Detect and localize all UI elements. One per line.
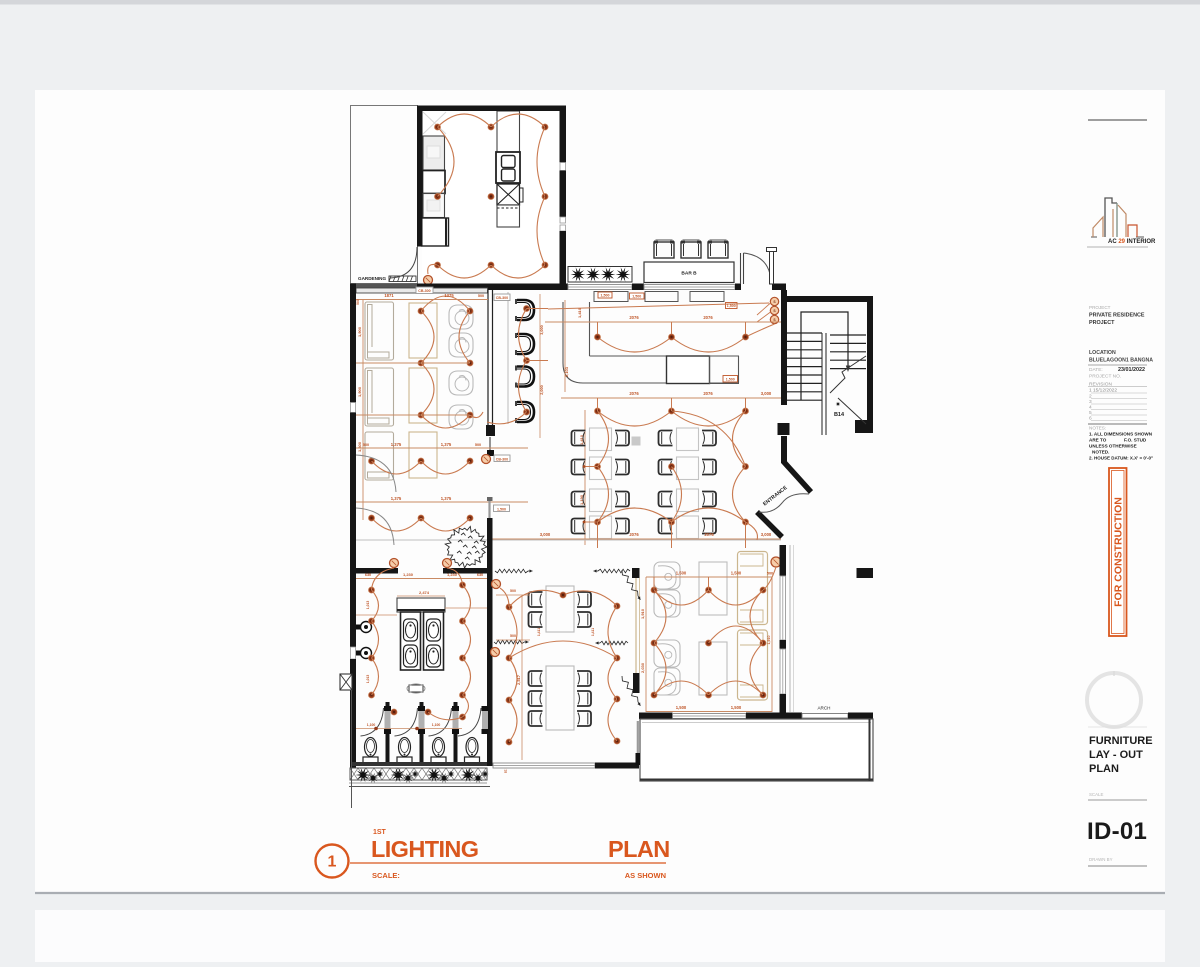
svg-text:23/01/2022: 23/01/2022 [1118, 367, 1145, 373]
svg-text:500: 500 [767, 572, 773, 576]
svg-text:UNLESS OTHERWISE: UNLESS OTHERWISE [1089, 444, 1137, 449]
svg-text:1,410: 1,410 [577, 307, 582, 318]
svg-text:DATE:: DATE: [1089, 367, 1103, 373]
svg-text:1,500: 1,500 [676, 571, 687, 576]
svg-text:SCALE: SCALE [1089, 792, 1103, 797]
svg-text:500: 500 [510, 634, 516, 638]
svg-text:LIGHTING: LIGHTING [371, 836, 478, 862]
svg-text:1,910: 1,910 [640, 608, 645, 619]
svg-text:500: 500 [475, 443, 481, 447]
svg-text:3,000: 3,000 [540, 325, 544, 335]
svg-text:NOTED.: NOTED. [1092, 450, 1109, 455]
svg-text:500: 500 [510, 589, 516, 593]
svg-text:1,500: 1,500 [726, 378, 735, 382]
svg-text:3,000: 3,000 [761, 391, 772, 396]
svg-text:2076: 2076 [703, 315, 713, 320]
svg-text:CB-300: CB-300 [496, 457, 508, 461]
svg-text:FOR CONSTRUCTION: FOR CONSTRUCTION [1113, 497, 1125, 607]
svg-text:500: 500 [363, 443, 369, 447]
svg-text:1,900: 1,900 [357, 326, 362, 337]
svg-text:BAR B: BAR B [681, 271, 697, 277]
svg-text:2076: 2076 [629, 315, 639, 320]
svg-text:PROJECT: PROJECT [1089, 305, 1111, 310]
svg-text:1,411: 1,411 [537, 628, 541, 636]
svg-text:1,375: 1,375 [441, 496, 452, 501]
svg-text:PLAN: PLAN [1089, 763, 1119, 775]
svg-text:1,013: 1,013 [366, 601, 370, 610]
svg-text:1 15/12/2022: 1 15/12/2022 [1089, 388, 1117, 394]
svg-text:500: 500 [356, 299, 360, 305]
svg-text:1,230: 1,230 [403, 572, 414, 577]
svg-text:2076: 2076 [629, 391, 639, 396]
svg-text:630: 630 [365, 573, 371, 577]
svg-text:2076: 2076 [703, 391, 713, 396]
svg-text:1,100: 1,100 [432, 723, 441, 727]
svg-text:PRIVATE RESIDENCE: PRIVATE RESIDENCE [1089, 313, 1145, 319]
svg-text:1,230: 1,230 [447, 572, 458, 577]
svg-text:AC 29 INTERIOR: AC 29 INTERIOR [1108, 239, 1156, 245]
svg-text:1,500: 1,500 [632, 295, 641, 299]
svg-text:1375: 1375 [444, 293, 454, 298]
svg-text:AS SHOWN: AS SHOWN [625, 871, 666, 880]
svg-text:2,474: 2,474 [419, 590, 430, 595]
svg-text:SCALE:: SCALE: [372, 871, 400, 880]
svg-text:1. ALL DIMENSIONS SHOWN: 1. ALL DIMENSIONS SHOWN [1089, 432, 1153, 437]
svg-text:3,000: 3,000 [761, 532, 772, 537]
svg-text:1,500: 1,500 [731, 571, 742, 576]
svg-text:1,013: 1,013 [366, 675, 370, 684]
svg-text:1ST: 1ST [373, 829, 387, 836]
svg-text:1,375: 1,375 [391, 496, 402, 501]
svg-text:PROJECT NO.: PROJECT NO. [1089, 374, 1121, 380]
svg-text:DRAWN BY: DRAWN BY [1089, 857, 1113, 862]
svg-text:1,910: 1,910 [767, 636, 771, 645]
svg-text:F.O. STUD: F.O. STUD [1124, 438, 1147, 443]
svg-text:B14: B14 [834, 412, 845, 418]
svg-text:1,375: 1,375 [391, 442, 402, 447]
svg-text:630: 630 [477, 573, 483, 577]
svg-text:PROJECT: PROJECT [1089, 320, 1115, 326]
svg-text:1: 1 [328, 854, 337, 871]
svg-text:1,411: 1,411 [591, 628, 595, 636]
svg-text:1,500: 1,500 [727, 304, 736, 308]
svg-text:500: 500 [478, 294, 484, 298]
svg-text:2. HOUSE DATUM: X.X' = 0'-0": 2. HOUSE DATUM: X.X' = 0'-0" [1089, 456, 1153, 461]
svg-text:2,517: 2,517 [516, 674, 521, 685]
svg-text:1,900: 1,900 [357, 386, 362, 397]
svg-text:1,500: 1,500 [731, 705, 742, 710]
svg-text:1,375: 1,375 [441, 442, 452, 447]
svg-text:GARDENING: GARDENING [358, 276, 387, 281]
svg-text:CB-300: CB-300 [496, 296, 508, 300]
svg-text:1,100: 1,100 [367, 723, 376, 727]
svg-text:ARCH: ARCH [817, 706, 830, 711]
svg-text:NOTES:: NOTES: [1089, 426, 1106, 431]
svg-text:ARE TO: ARE TO [1089, 438, 1107, 443]
svg-text:1,500: 1,500 [601, 294, 610, 298]
svg-text:1,500: 1,500 [497, 507, 506, 511]
svg-text:CB-300: CB-300 [418, 289, 430, 293]
svg-text:1,800: 1,800 [357, 441, 362, 452]
svg-text:ID-01: ID-01 [1087, 818, 1147, 845]
svg-text:3,000: 3,000 [540, 532, 551, 537]
svg-text:1871: 1871 [384, 293, 394, 298]
svg-text:FURNITURE: FURNITURE [1089, 735, 1153, 747]
svg-text:2,000: 2,000 [540, 385, 544, 395]
svg-text:2076: 2076 [704, 532, 714, 537]
svg-text:1,500: 1,500 [676, 705, 687, 710]
svg-text:LAY - OUT: LAY - OUT [1089, 749, 1143, 761]
svg-text:2,030: 2,030 [640, 662, 645, 673]
svg-text:2076: 2076 [629, 532, 639, 537]
svg-text:BLUELAGOON1 BANGNA: BLUELAGOON1 BANGNA [1089, 358, 1153, 364]
svg-text:LOCATION: LOCATION [1089, 350, 1116, 356]
svg-text:PLAN: PLAN [608, 836, 670, 862]
